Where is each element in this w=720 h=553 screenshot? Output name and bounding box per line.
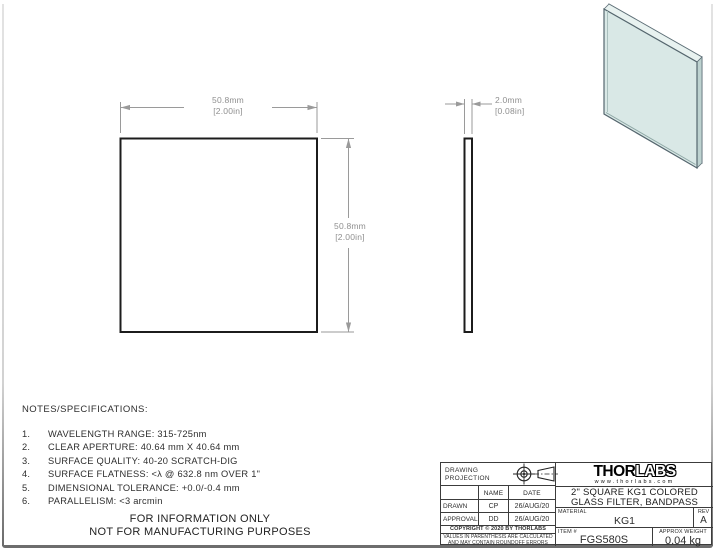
- thorlabs-logo-cell: THORLABS www.thorlabs.com: [556, 463, 713, 487]
- notes-list: 1. WAVELENGTH RANGE: 315-725nm 2. CLEAR …: [22, 428, 352, 508]
- note-item: 4. SURFACE FLATNESS: <λ @ 632.8 nm OVER …: [22, 468, 352, 481]
- weight-value: 0.04 kg: [653, 536, 713, 547]
- rev-label: REV: [694, 508, 713, 515]
- note-item: 1. WAVELENGTH RANGE: 315-725nm: [22, 428, 352, 441]
- name-header-cell: NAME: [479, 486, 509, 500]
- disclaimer-cell: VALUES IN PARENTHESIS ARE CALCULATED AND…: [441, 534, 556, 546]
- drawing-projection-cell: DRAWING PROJECTION: [441, 463, 556, 486]
- item-label: ITEM #: [558, 529, 577, 535]
- drawn-label-cell: DRAWN: [441, 500, 479, 513]
- date-header-cell: DATE: [509, 486, 556, 500]
- projection-cone-icon: [534, 467, 558, 481]
- width-dimension-label: 50.8mm [2.00in]: [186, 95, 270, 116]
- copyright-cell: COPYRIGHT © 2020 BY THORLABS: [441, 526, 556, 534]
- thorlabs-logo: THORLABS: [556, 463, 713, 479]
- approval-date-cell: 26/AUG/20: [509, 513, 556, 526]
- title-block: DRAWING PROJECTION NAME DATE DRAWN CP 26…: [440, 462, 712, 545]
- front-view-outline: [121, 139, 318, 333]
- note-item: 3. SURFACE QUALITY: 40-20 SCRATCH-DIG: [22, 455, 352, 468]
- header-blank-cell: [441, 486, 479, 500]
- approval-label-cell: APPROVAL: [441, 513, 479, 526]
- drawing-title-cell: 2" SQUARE KG1 COLORED GLASS FILTER, BAND…: [556, 487, 713, 508]
- material-cell: MATERIAL KG1: [556, 508, 694, 528]
- approval-name-cell: DD: [479, 513, 509, 526]
- note-item: 2. CLEAR APERTURE: 40.64 mm X 40.64 mm: [22, 441, 352, 454]
- rev-value: A: [694, 515, 713, 526]
- side-view-outline: [465, 139, 473, 333]
- item-value: FGS580S: [556, 534, 652, 546]
- drawn-name-cell: CP: [479, 500, 509, 513]
- height-dimension-label: 50.8mm [2.00in]: [320, 221, 380, 242]
- info-notice: FOR INFORMATION ONLY NOT FOR MANUFACTURI…: [30, 513, 370, 538]
- note-item: 6. PARALLELISM: <3 arcmin: [22, 495, 352, 508]
- rev-cell: REV A: [694, 508, 713, 528]
- material-value: KG1: [556, 515, 693, 527]
- note-item: 5. DIMENSIONAL TOLERANCE: +0.0/-0.4 mm: [22, 482, 352, 495]
- notes-heading: NOTES/SPECIFICATIONS:: [22, 404, 148, 415]
- third-angle-projection-icon: [501, 463, 559, 485]
- thickness-dimension-label: 2.0mm [0.08in]: [495, 95, 547, 116]
- item-number-cell: ITEM # FGS580S: [556, 528, 653, 546]
- thickness-dimension-lines: [445, 99, 492, 134]
- weight-cell: APPROX WEIGHT 0.04 kg: [653, 528, 713, 546]
- glass-filter-3d-render: [604, 4, 702, 168]
- thorlabs-url: www.thorlabs.com: [556, 479, 713, 485]
- material-label: MATERIAL: [558, 509, 587, 515]
- drawn-date-cell: 26/AUG/20: [509, 500, 556, 513]
- projection-front-icon: [513, 464, 535, 485]
